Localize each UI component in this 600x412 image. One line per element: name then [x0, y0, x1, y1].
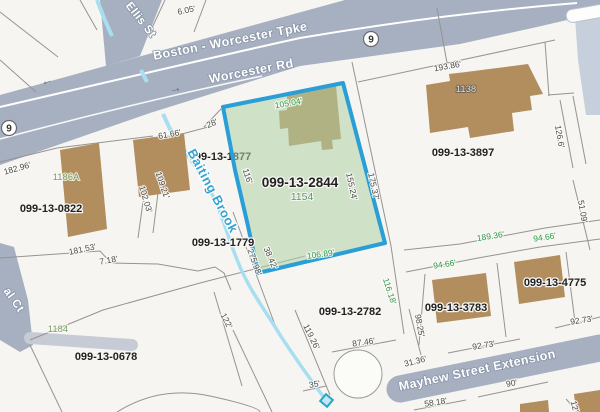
parcel-id-label: 099-13-1779: [192, 237, 254, 249]
address-label: 1184: [48, 324, 68, 335]
parcel-id-label: 099-13-2782: [319, 306, 381, 318]
cul-de-sac-outline: [334, 350, 382, 398]
parcel-map-viewport[interactable]: 099-13-1877 Boston - Worcester TpkeWorce…: [0, 0, 600, 412]
parcel-id-label: 099-13-0822: [20, 203, 82, 215]
map-canvas[interactable]: 099-13-1877 Boston - Worcester TpkeWorce…: [0, 0, 600, 412]
address-label: 1154: [291, 191, 314, 203]
dimension-label: 35': [308, 378, 321, 390]
driveway-0678: [30, 338, 132, 345]
route-9-shield: 9: [364, 32, 379, 47]
route-shield-number: 9: [6, 124, 12, 135]
parcel-id-label: 099-13-3783: [425, 302, 487, 314]
route-shield-number: 9: [368, 35, 374, 46]
building-1186a: [60, 143, 107, 237]
dimension-label: 90': [505, 377, 518, 389]
building-3783: [432, 273, 491, 323]
parcel-id-label: 099-13-0678: [75, 351, 137, 363]
route-9-shield: 9: [2, 121, 17, 136]
selected-parcel-id-label: 099-13-2844: [262, 175, 339, 190]
parcel-id-label: 099-13-3897: [432, 147, 494, 159]
address-label: 1138: [456, 84, 476, 95]
parcel-id-label: 099-13-4775: [524, 277, 586, 289]
address-label: 1186A: [53, 172, 80, 183]
